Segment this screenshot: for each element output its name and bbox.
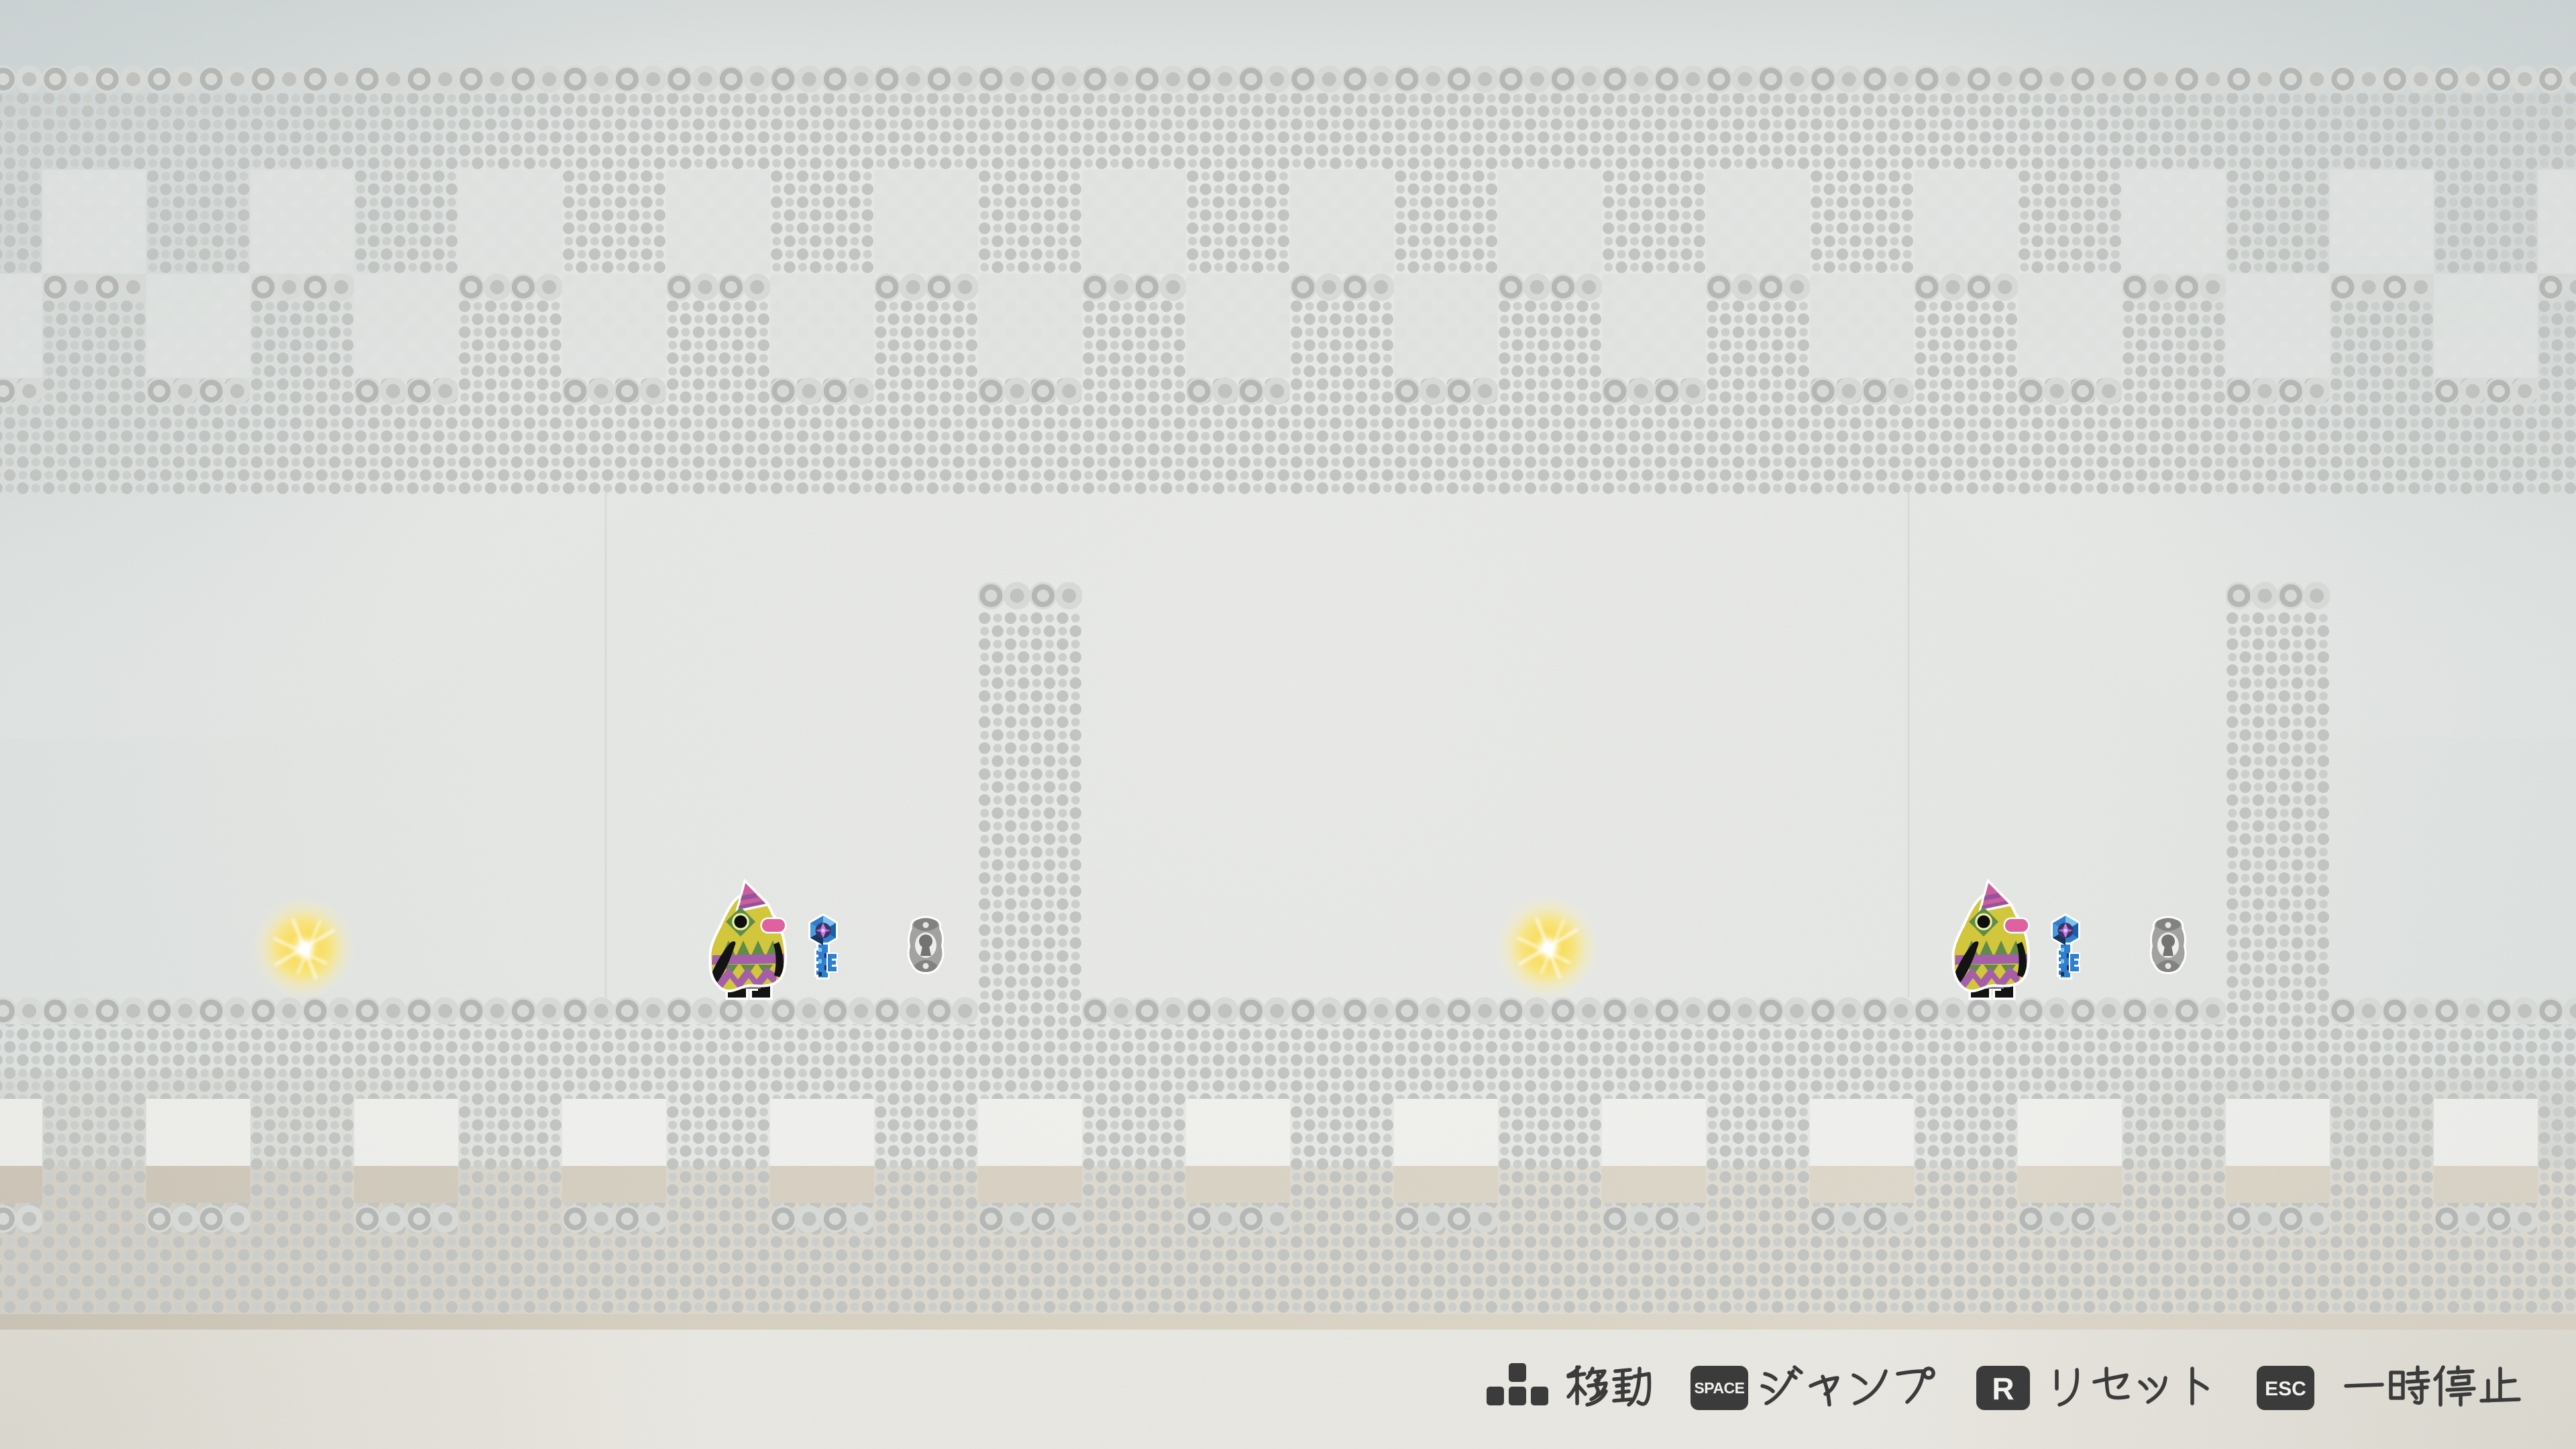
svg-text:ESC: ESC [2265,1378,2306,1400]
svg-text:SPACE: SPACE [1694,1379,1744,1397]
svg-text:R: R [1992,1371,2014,1406]
